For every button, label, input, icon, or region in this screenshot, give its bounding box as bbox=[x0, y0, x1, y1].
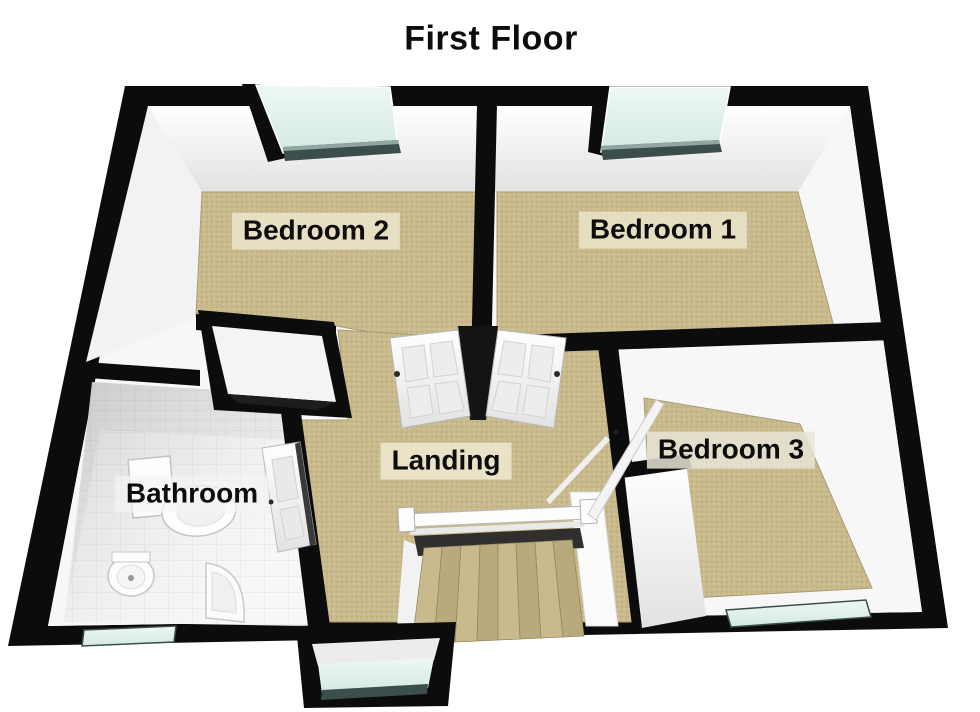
bedroom1-window-bay bbox=[588, 86, 730, 160]
room-label-bedroom2: Bedroom 2 bbox=[232, 213, 400, 250]
room-label-landing: Landing bbox=[381, 443, 512, 480]
stair-bay-window bbox=[296, 622, 456, 708]
cupboard-interior bbox=[212, 326, 336, 402]
bedroom1-door bbox=[486, 330, 566, 428]
room-label-bedroom3: Bedroom 3 bbox=[647, 432, 815, 469]
bedroom2-window-bay bbox=[242, 84, 401, 162]
door-handle bbox=[614, 430, 619, 435]
north-wall-face bbox=[148, 106, 850, 192]
cupboard bbox=[198, 310, 352, 418]
sink-drain bbox=[128, 575, 134, 581]
room-label-bathroom: Bathroom bbox=[115, 476, 269, 513]
center-doors bbox=[390, 326, 566, 428]
floor-title: First Floor bbox=[404, 20, 578, 57]
door-handle bbox=[394, 371, 400, 377]
floorplan-drawing bbox=[0, 0, 980, 712]
door-handle bbox=[269, 500, 274, 505]
room-label-bedroom1: Bedroom 1 bbox=[579, 212, 747, 249]
bedroom2-door bbox=[390, 330, 470, 428]
bathroom-south-window bbox=[82, 626, 176, 646]
door-handle bbox=[554, 371, 560, 377]
banister-post-left bbox=[398, 507, 415, 532]
sink-back bbox=[112, 552, 150, 562]
sink bbox=[108, 552, 154, 596]
floorplan-canvas: First Floor Bedroom 2 Bedroom 1 Bedroom … bbox=[0, 0, 980, 712]
